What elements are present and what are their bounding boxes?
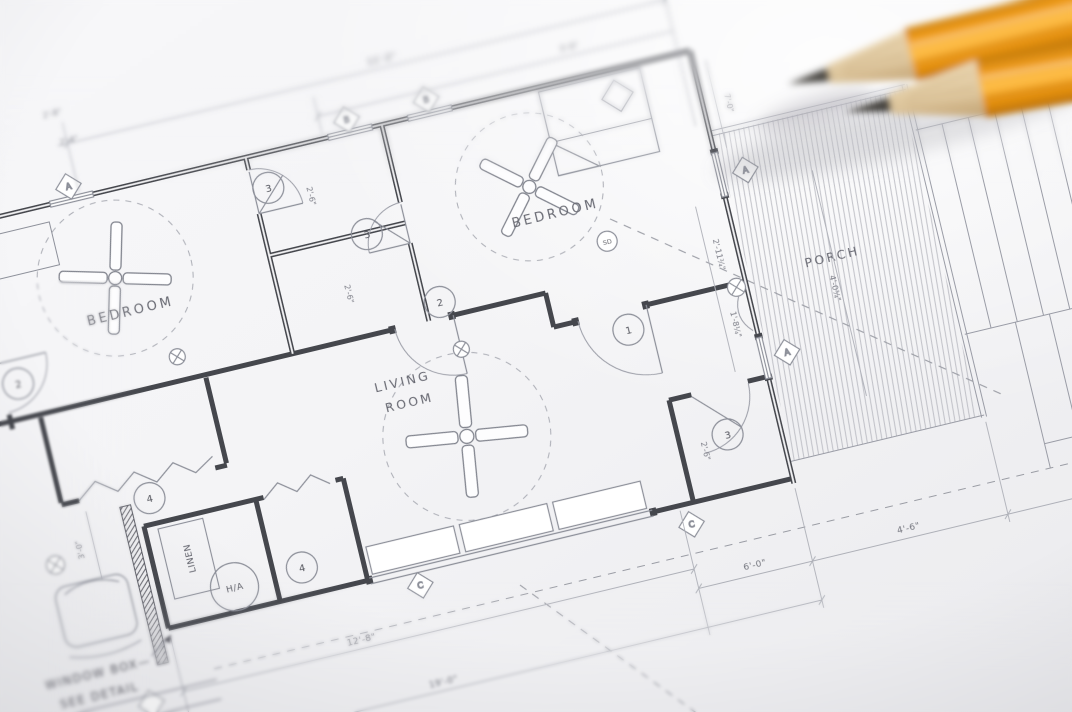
- blueprint-photo: SD H/A LINEN BEDROOM BEDROOM LIVING ROOM…: [0, 0, 1072, 712]
- blueprint-canvas: SD H/A LINEN BEDROOM BEDROOM LIVING ROOM…: [0, 0, 1072, 712]
